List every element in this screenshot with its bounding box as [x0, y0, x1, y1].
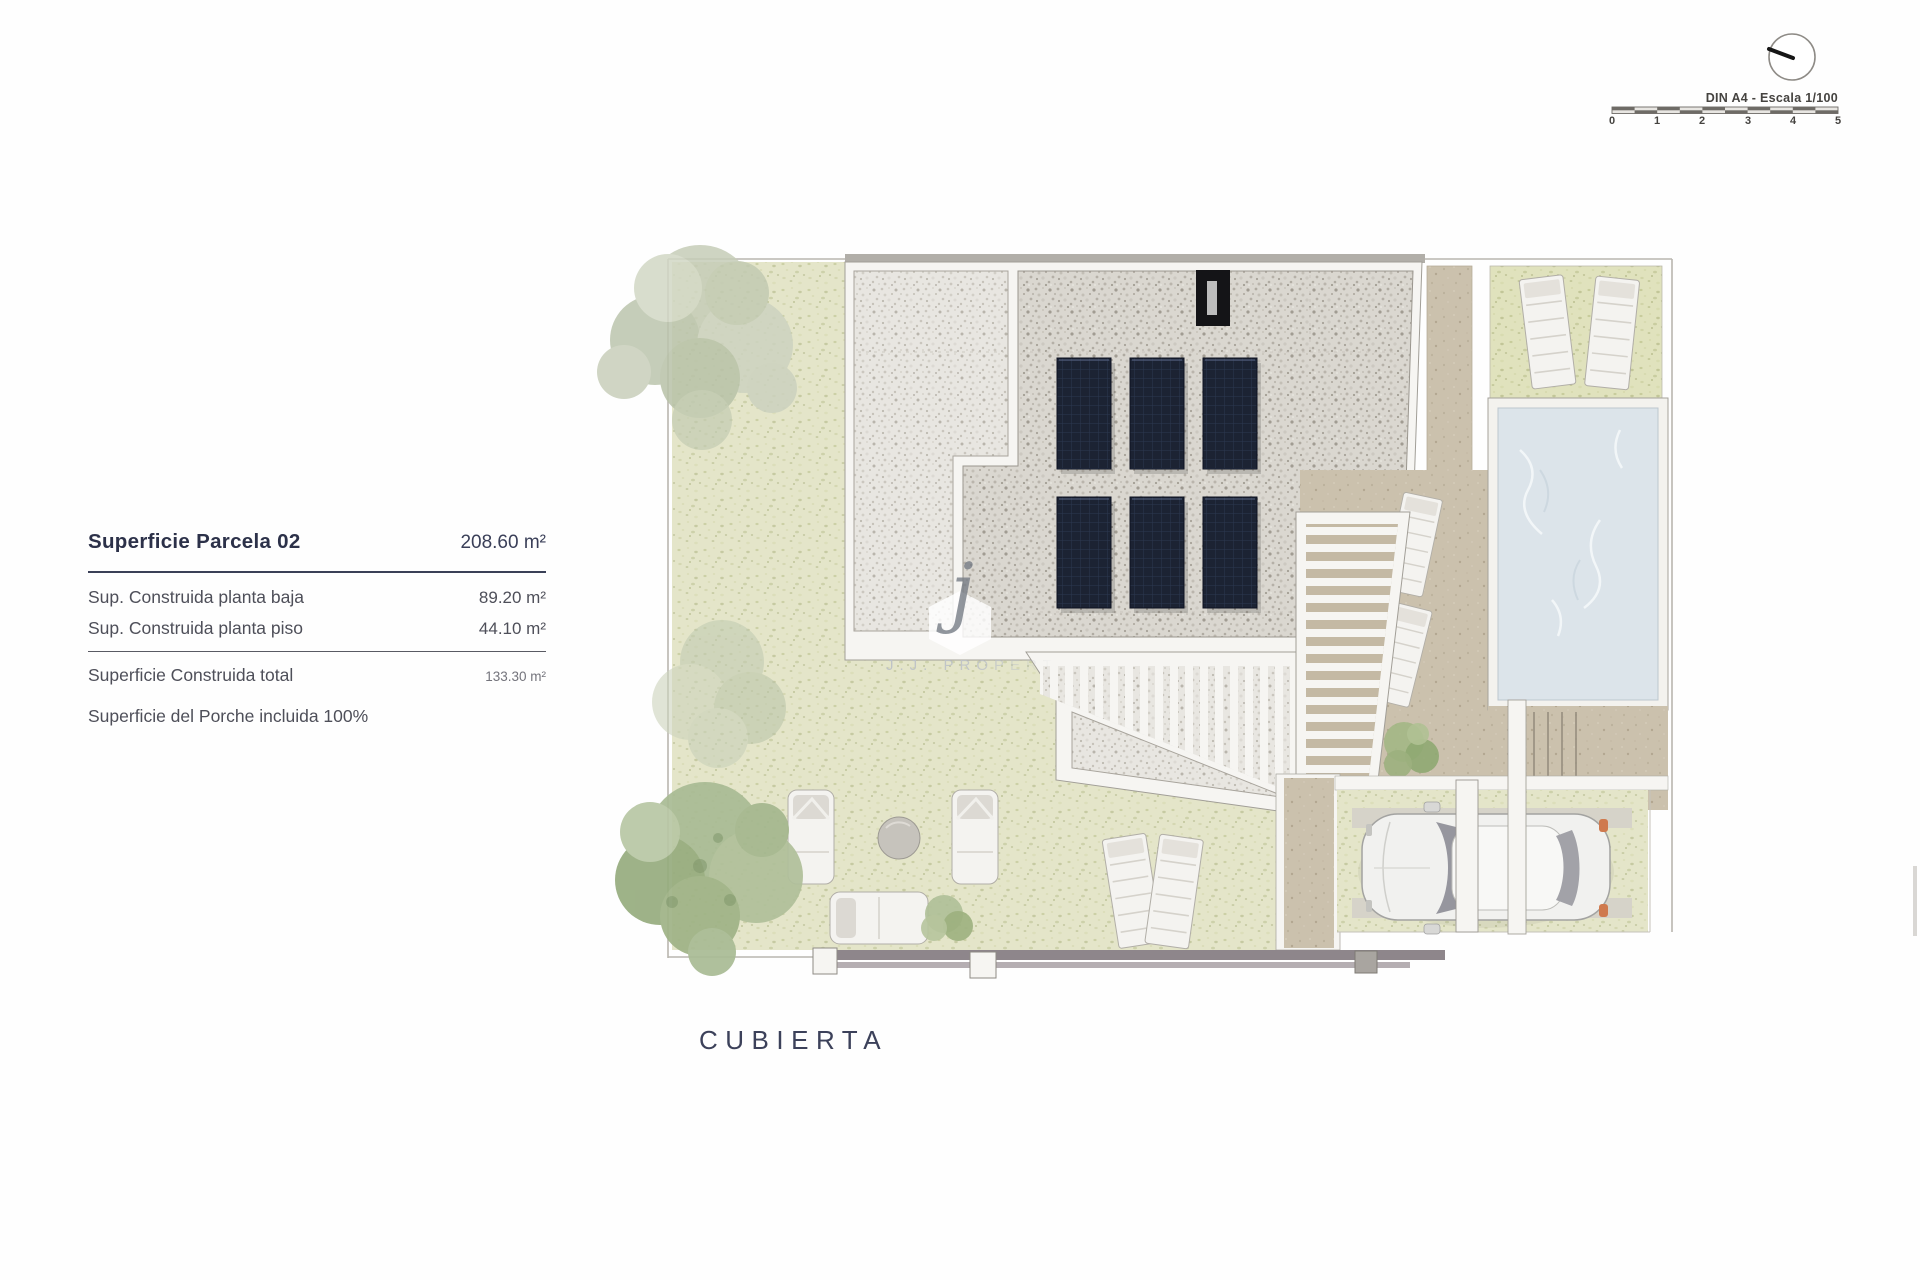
armchair	[952, 790, 998, 884]
scale-tick: 0	[1609, 115, 1615, 127]
scale-tick: 4	[1790, 115, 1796, 127]
solar-panel	[1130, 497, 1188, 613]
row-label: Sup. Construida planta baja	[88, 587, 304, 608]
watermark-text: J.J. PROPERTIES	[886, 657, 1100, 674]
panel-row: Sup. Construida planta piso 44.10 m²	[88, 618, 546, 639]
panel-title-value: 208.60 m²	[460, 532, 546, 554]
solar-panel	[1203, 497, 1261, 613]
pool	[1488, 398, 1668, 710]
boundary-wall	[813, 948, 1445, 978]
panel-note: Superficie del Porche incluida 100%	[88, 706, 546, 727]
panel-total-row: Superficie Construida total 133.30 m²	[88, 665, 546, 686]
total-value: 133.30 m²	[485, 669, 546, 684]
solar-panel	[1130, 358, 1188, 474]
car-taillight	[1599, 819, 1608, 832]
scale-bar	[1612, 107, 1838, 114]
row-label: Sup. Construida planta piso	[88, 618, 303, 639]
car-mirror	[1424, 802, 1440, 812]
car-mirror	[1424, 924, 1440, 934]
scale-tick: 3	[1745, 115, 1751, 127]
panel-title: Superficie Parcela 02	[88, 530, 301, 554]
chimney	[1196, 270, 1230, 326]
solar-panel	[1057, 358, 1115, 474]
solar-panel	[1057, 497, 1115, 613]
page-edge-artifact	[1913, 866, 1917, 936]
car-taillight	[1599, 904, 1608, 917]
north-compass-icon	[1769, 34, 1815, 80]
scale-tick: 2	[1699, 115, 1705, 127]
sofa	[830, 892, 928, 944]
wall-post	[1355, 951, 1377, 973]
wall-post	[970, 952, 996, 978]
total-label: Superficie Construida total	[88, 665, 293, 686]
scale-tick: 5	[1835, 115, 1841, 127]
row-value: 44.10 m²	[479, 619, 546, 639]
sunbathing-lawn	[1490, 266, 1662, 398]
watermark-logo-letter: j	[938, 553, 986, 629]
plan-sheet: Superficie Parcela 02 208.60 m² Sup. Con…	[0, 0, 1920, 1280]
panel-row: Sup. Construida planta baja 89.20 m²	[88, 587, 546, 608]
scale-label: DIN A4 - Escala 1/100	[1706, 91, 1838, 105]
solar-panel	[1203, 358, 1261, 474]
carport-post-line	[1456, 780, 1478, 932]
sheet-title: CUBIERTA	[699, 1025, 888, 1056]
divider	[88, 571, 546, 573]
scale-ticks: 0 1 2 3 4 5	[1606, 115, 1846, 129]
divider	[88, 651, 546, 652]
wall-post	[813, 948, 837, 974]
row-value: 89.20 m²	[479, 588, 546, 608]
scale-tick: 1	[1654, 115, 1660, 127]
walkway-to-carport	[1276, 774, 1340, 950]
carport	[1335, 776, 1668, 934]
structural-line	[1508, 700, 1526, 934]
car-top-view	[1362, 802, 1610, 934]
